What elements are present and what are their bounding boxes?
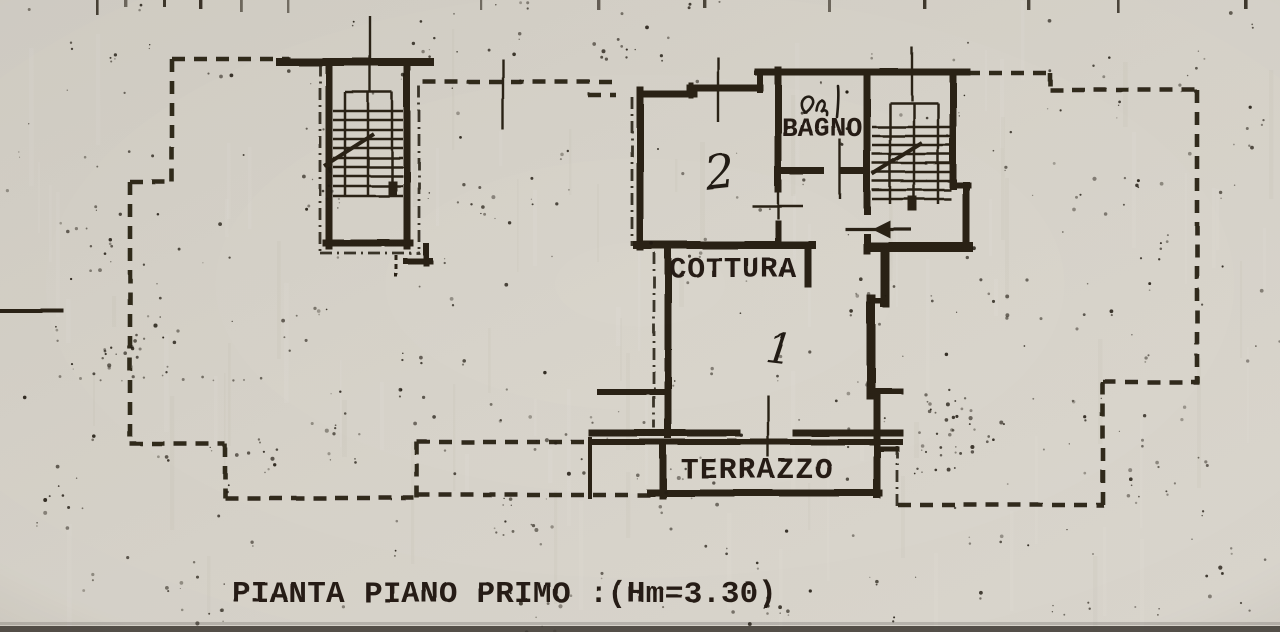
scan-bottom-edge [0,622,1280,625]
scanned-floor-plan-page: BAGNO COTTURA TERRAZZO 2 1 PIANTA PIANO … [0,0,1280,632]
floor-plan-svg: BAGNO COTTURA TERRAZZO 2 1 PIANTA PIANO … [0,0,1280,632]
photo-vignette [0,0,1280,632]
scan-bottom-edge-line [0,626,1280,632]
